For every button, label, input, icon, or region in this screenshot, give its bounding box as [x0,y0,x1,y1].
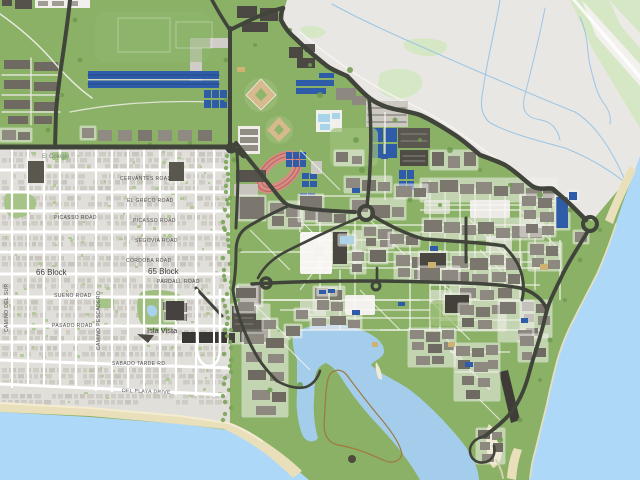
svg-text:66 Block: 66 Block [36,268,68,277]
svg-text:CERVANTES ROAD: CERVANTES ROAD [120,176,172,182]
svg-text:Isla Vista: Isla Vista [147,326,178,335]
svg-text:PICASSO ROAD: PICASSO ROAD [54,215,97,221]
svg-text:SUENO ROAD: SUENO ROAD [54,293,92,299]
svg-text:EL GRECO ROAD: EL GRECO ROAD [127,198,174,204]
svg-text:El Colegio: El Colegio [42,154,70,160]
svg-text:PICASSO ROAD: PICASSO ROAD [133,218,176,224]
svg-text:CAMINO PESCADERO: CAMINO PESCADERO [96,291,102,350]
svg-text:SEGOVIA ROAD: SEGOVIA ROAD [135,238,178,244]
svg-text:CAMINO DEL SUR: CAMINO DEL SUR [4,284,10,332]
svg-text:SABADO TARDE RD.: SABADO TARDE RD. [112,361,167,367]
svg-text:65 Block: 65 Block [148,267,180,276]
svg-text:PARDALL ROAD: PARDALL ROAD [157,279,200,285]
svg-text:CORDOBA ROAD: CORDOBA ROAD [126,258,172,264]
svg-text:PASADO ROAD: PASADO ROAD [52,323,93,329]
